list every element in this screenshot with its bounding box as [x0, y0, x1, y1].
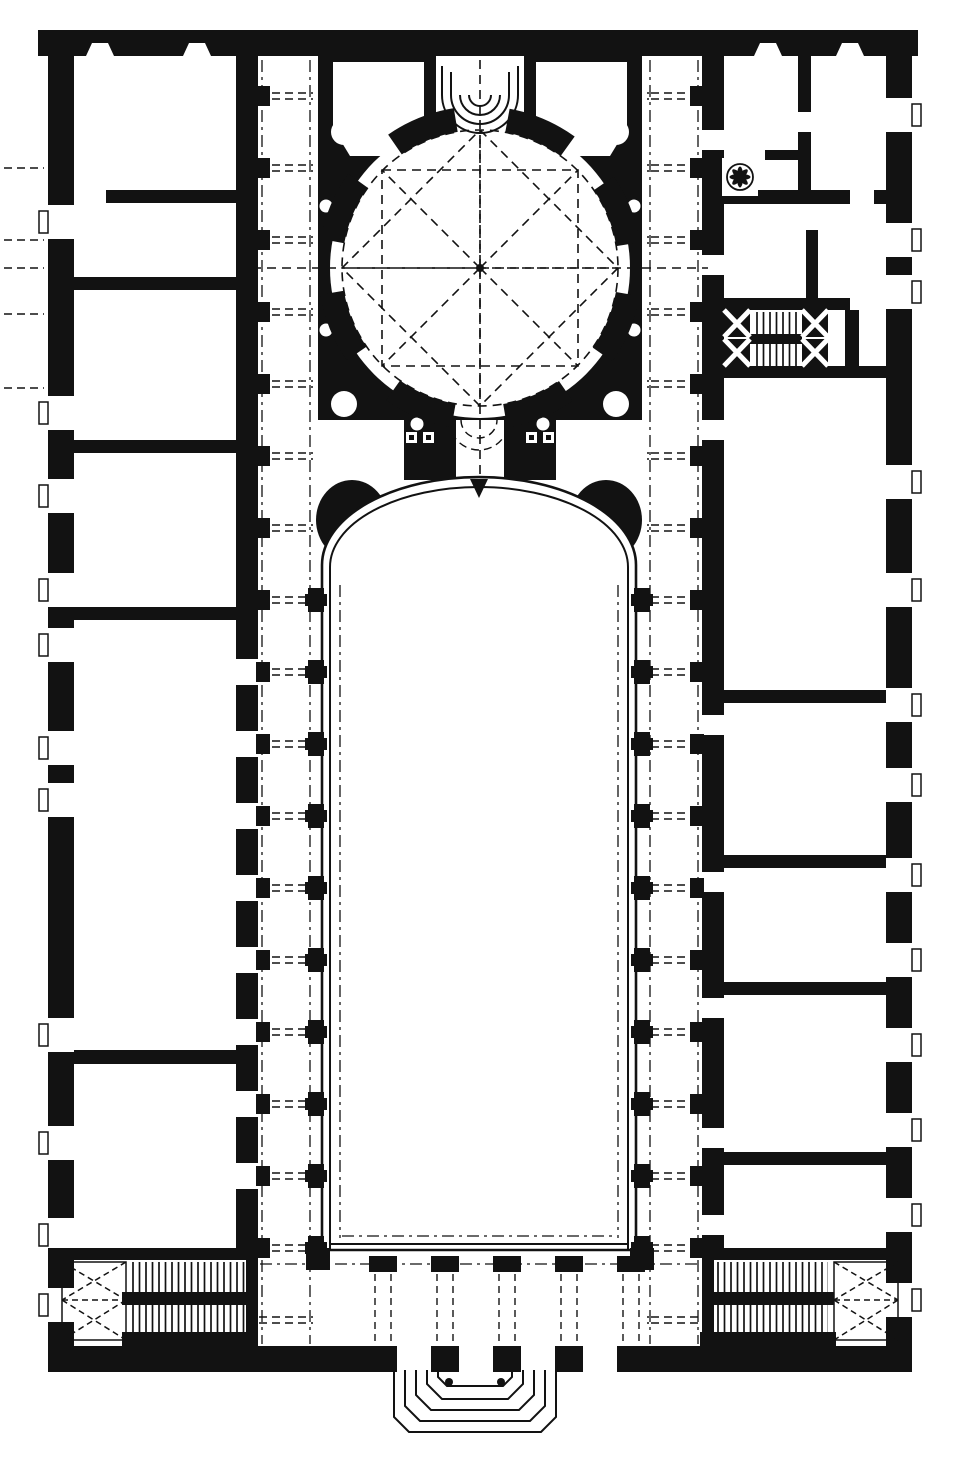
- room-divider: [106, 190, 236, 203]
- right-inner-wall: [702, 56, 724, 1260]
- nave-hall: [305, 477, 653, 1260]
- room-divider: [74, 607, 236, 620]
- room-divider: [74, 277, 236, 290]
- portico-bays: [352, 1256, 662, 1346]
- entrance-column-base: [497, 1378, 505, 1386]
- scanned-plan-page: Engraved black-and-white floor plan of a…: [0, 0, 960, 1475]
- room-divider: [74, 440, 236, 453]
- left-wall-pilasters: [256, 60, 270, 1260]
- floor-plan-drawing: Engraved black-and-white floor plan of a…: [0, 0, 960, 1475]
- right-wall-pilasters: [690, 60, 704, 1260]
- room-divider: [74, 1050, 236, 1064]
- left-inner-wall: [236, 56, 258, 659]
- windows-right-wall: [884, 98, 921, 1317]
- spiral-stair: [727, 164, 753, 190]
- nave-piers-left: [305, 560, 327, 1260]
- nave-piers-right: [631, 560, 653, 1260]
- entrance-column-base: [445, 1378, 453, 1386]
